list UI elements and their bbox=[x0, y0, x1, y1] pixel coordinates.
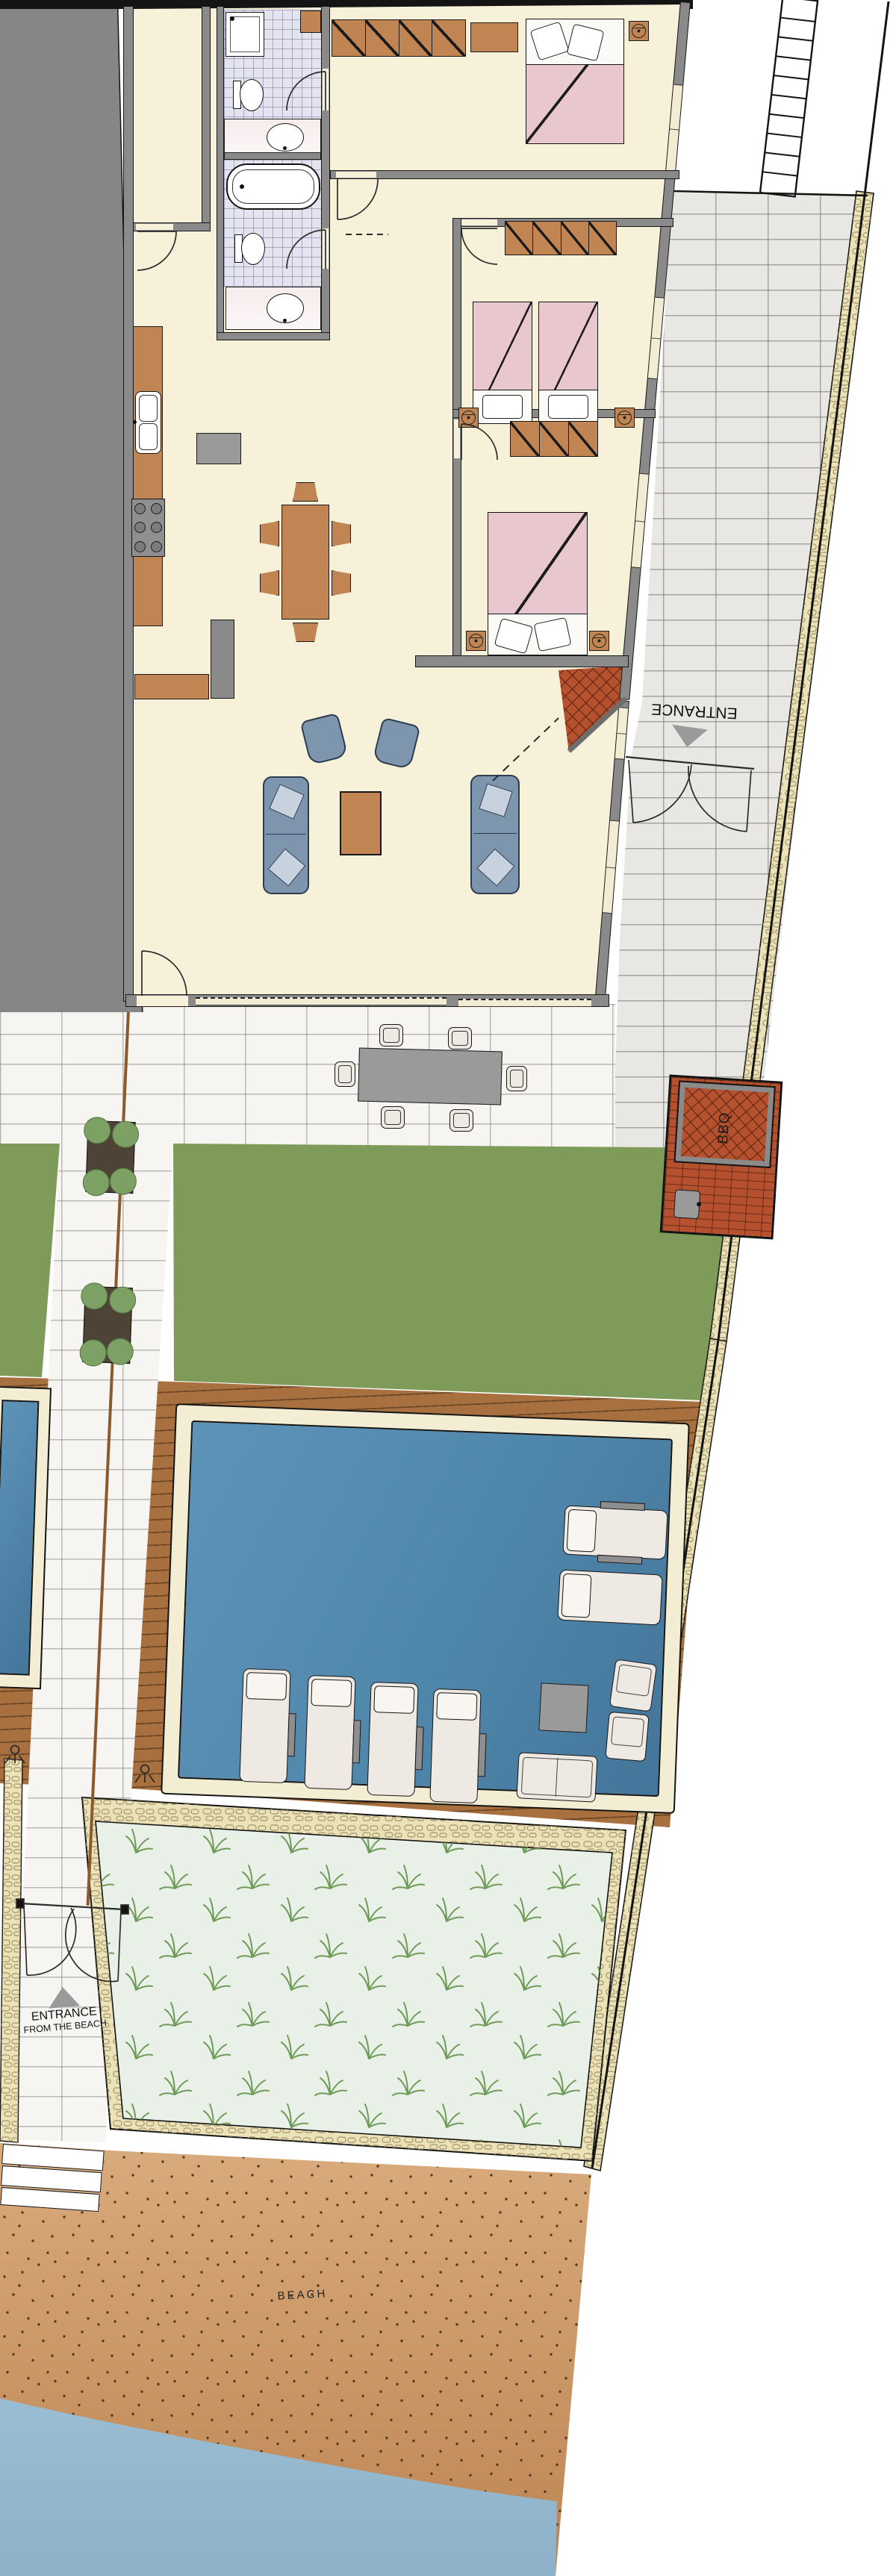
shower-stall bbox=[225, 12, 264, 57]
dining-chair bbox=[293, 482, 318, 502]
double-bed bbox=[488, 512, 588, 655]
outdoor-chair bbox=[335, 1061, 355, 1087]
bath-wall-s bbox=[217, 332, 330, 340]
bathtub bbox=[226, 163, 320, 210]
living-wall-stub bbox=[211, 620, 234, 699]
kitchen-sink bbox=[135, 391, 161, 454]
bedroom3-wall-s bbox=[415, 655, 629, 667]
outdoor-chair bbox=[449, 1109, 473, 1132]
planter-box bbox=[85, 1120, 135, 1194]
outdoor-dining-table bbox=[358, 1047, 503, 1105]
coffee-table bbox=[340, 791, 382, 855]
bath-cabinet bbox=[300, 10, 321, 33]
sun-lounger bbox=[367, 1682, 418, 1797]
ceiling-fan-icon bbox=[615, 408, 635, 428]
villa-house bbox=[0, 0, 896, 1045]
double-bed bbox=[526, 19, 624, 144]
south-window bbox=[196, 997, 447, 1005]
sofa bbox=[470, 775, 520, 894]
kitchen-island bbox=[196, 433, 241, 464]
vanity-counter bbox=[225, 287, 321, 330]
dining-chair bbox=[260, 570, 279, 596]
sun-lounger bbox=[557, 1569, 662, 1625]
dining-chair bbox=[332, 570, 351, 596]
wardrobe bbox=[510, 421, 598, 457]
ceiling-fan-icon bbox=[589, 631, 609, 651]
beach-label: BEACH bbox=[269, 2287, 337, 2304]
deck-sofa bbox=[516, 1752, 597, 1802]
outdoor-chair bbox=[506, 1066, 527, 1091]
beach-entrance-arrow-icon bbox=[47, 1986, 80, 2009]
bath-wall-e bbox=[321, 6, 330, 340]
deck-side-table bbox=[538, 1682, 588, 1733]
wardrobe bbox=[332, 19, 466, 57]
nightstand bbox=[470, 22, 518, 52]
outdoor-chair bbox=[381, 1106, 405, 1129]
bbq-sink bbox=[673, 1189, 700, 1219]
sun-lounger bbox=[304, 1675, 355, 1790]
south-window bbox=[458, 999, 591, 1007]
bath-wall-w bbox=[217, 6, 224, 340]
vanity-counter bbox=[224, 119, 321, 153]
deck-armchair bbox=[609, 1659, 657, 1712]
sea bbox=[0, 2398, 557, 2576]
dining-chair bbox=[332, 521, 351, 546]
ceiling-fan-icon bbox=[458, 408, 479, 428]
bbq-grill: BBQ bbox=[676, 1082, 774, 1166]
kitchen-counter bbox=[133, 326, 163, 626]
sun-lounger bbox=[239, 1668, 290, 1783]
bedroom1-wall-s bbox=[330, 170, 679, 179]
vegetation-area bbox=[82, 1797, 626, 2161]
single-bed bbox=[538, 302, 598, 424]
single-bed bbox=[473, 302, 532, 424]
sofa bbox=[263, 776, 309, 894]
dining-chair bbox=[260, 521, 279, 546]
dining-chair bbox=[293, 623, 318, 642]
site-plan: BBQ bbox=[0, 0, 896, 2576]
planter-box bbox=[82, 1286, 133, 1364]
deck-armchair bbox=[605, 1712, 649, 1762]
ceiling-fan-icon bbox=[629, 21, 649, 41]
storage-wall bbox=[202, 6, 211, 231]
wardrobe bbox=[505, 221, 617, 255]
stove bbox=[131, 499, 165, 557]
dining-table bbox=[281, 505, 329, 620]
ceiling-fan-icon bbox=[466, 631, 486, 651]
sideboard bbox=[134, 674, 209, 699]
bbq-counter: BBQ bbox=[660, 1075, 783, 1240]
sun-lounger bbox=[429, 1688, 481, 1803]
sun-lounger bbox=[562, 1505, 668, 1559]
